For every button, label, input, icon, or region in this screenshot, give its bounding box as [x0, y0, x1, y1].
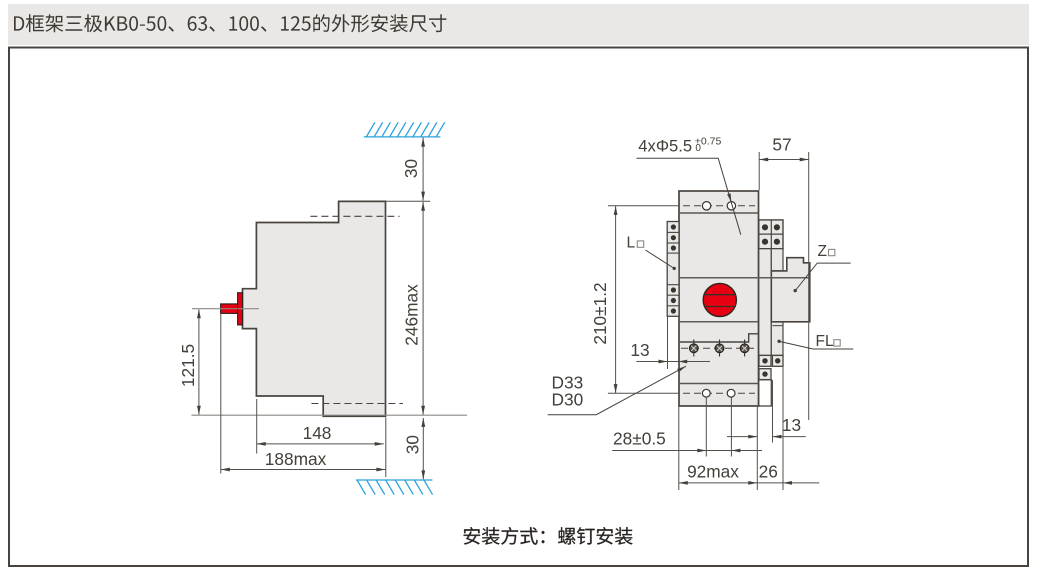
- svg-text:210±1.2: 210±1.2: [590, 282, 610, 344]
- svg-text:28±0.5: 28±0.5: [613, 429, 666, 449]
- svg-text:L: L: [627, 235, 636, 252]
- svg-text:13: 13: [630, 340, 649, 360]
- svg-text:30: 30: [403, 435, 423, 454]
- svg-text:13: 13: [782, 415, 801, 435]
- svg-text:148: 148: [303, 423, 332, 443]
- svg-text:121.5: 121.5: [178, 344, 198, 387]
- svg-text:FL: FL: [816, 333, 834, 350]
- svg-text:Z: Z: [818, 243, 827, 260]
- svg-text:0: 0: [695, 143, 701, 154]
- svg-text:92max: 92max: [687, 461, 739, 481]
- svg-text:188max: 188max: [265, 449, 327, 469]
- svg-text:26: 26: [759, 461, 778, 481]
- svg-text:4xΦ5.5: 4xΦ5.5: [638, 136, 692, 155]
- svg-text:D30: D30: [552, 390, 584, 410]
- svg-text:30: 30: [401, 159, 421, 178]
- svg-text:246max: 246max: [401, 284, 421, 346]
- svg-text:57: 57: [772, 134, 791, 154]
